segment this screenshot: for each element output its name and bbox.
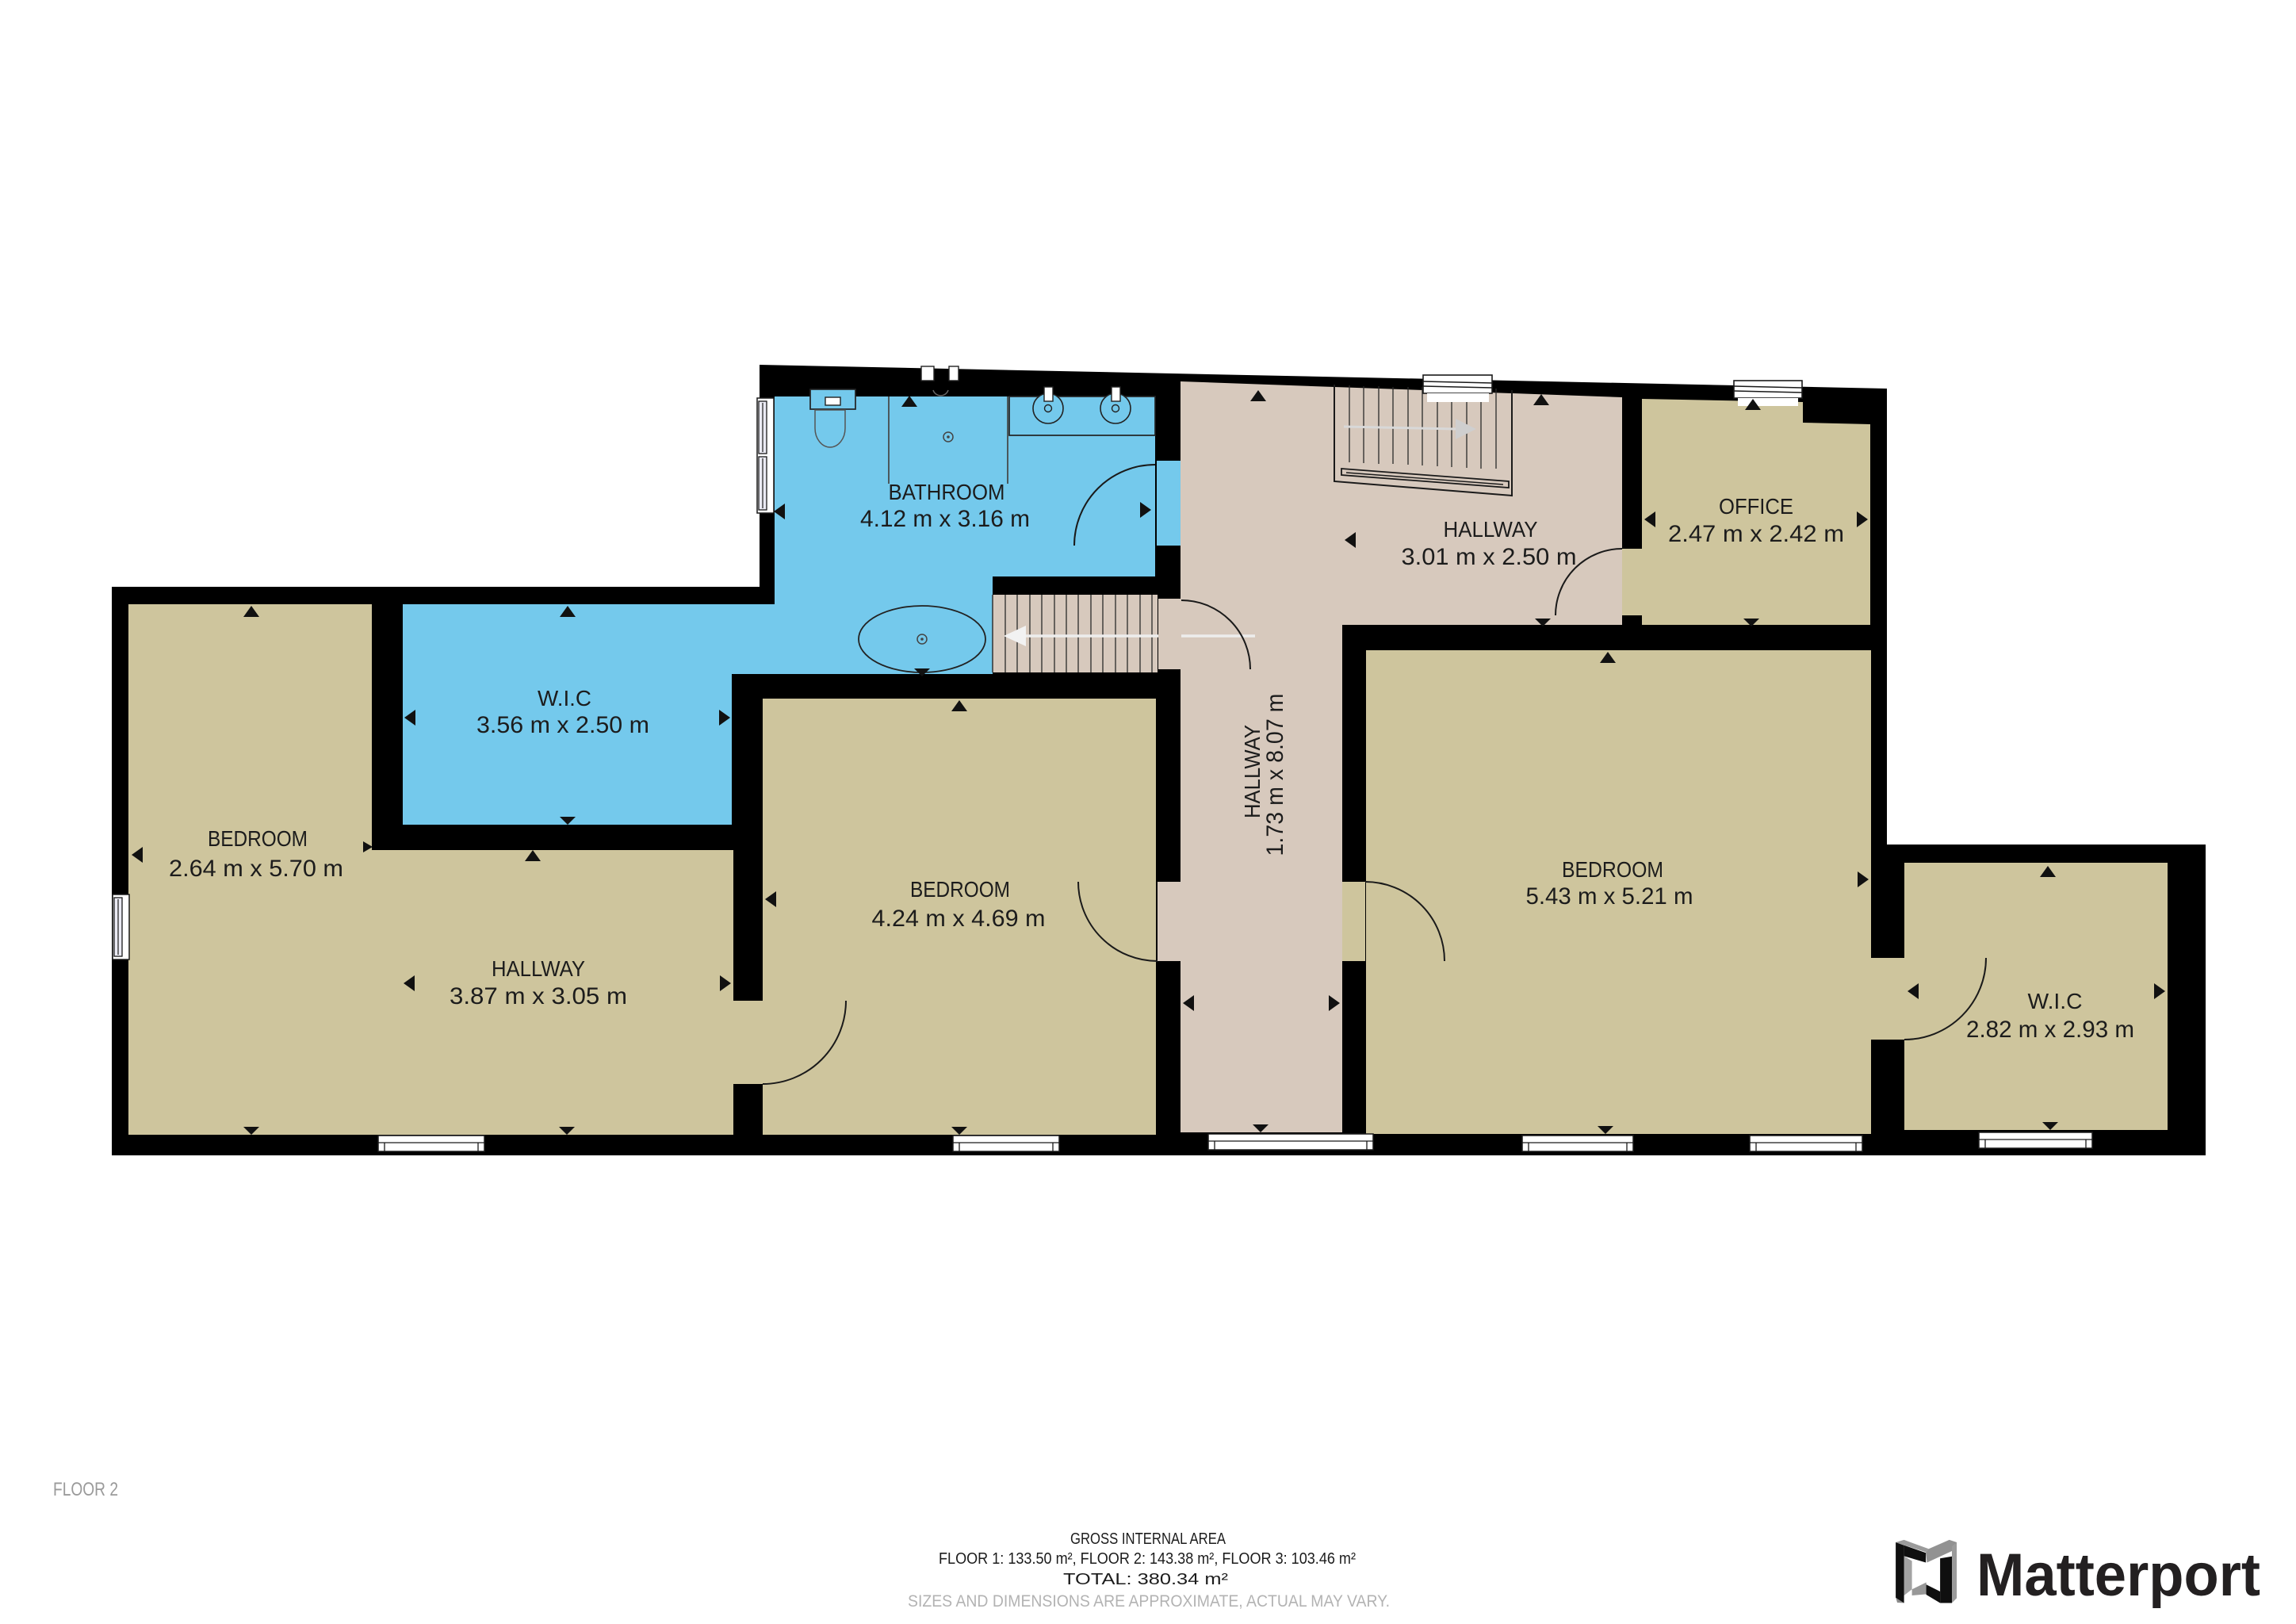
svg-text:TOTAL: 380.34 m²: TOTAL: 380.34 m² xyxy=(1063,1571,1228,1588)
svg-text:HALLWAY: HALLWAY xyxy=(492,956,585,981)
svg-text:W.I.C: W.I.C xyxy=(538,686,591,710)
svg-text:3.56 m x 2.50 m: 3.56 m x 2.50 m xyxy=(476,712,649,738)
svg-text:2.82 m x 2.93 m: 2.82 m x 2.93 m xyxy=(1966,1017,2134,1043)
svg-text:4.12 m x 3.16 m: 4.12 m x 3.16 m xyxy=(860,506,1030,532)
svg-text:FLOOR 1: 133.50 m², FLOOR 2: 1: FLOOR 1: 133.50 m², FLOOR 2: 143.38 m², … xyxy=(939,1550,1356,1568)
svg-text:BEDROOM: BEDROOM xyxy=(208,826,308,851)
svg-text:BEDROOM: BEDROOM xyxy=(910,877,1010,902)
svg-text:3.87 m x 3.05 m: 3.87 m x 3.05 m xyxy=(450,983,627,1009)
svg-text:BEDROOM: BEDROOM xyxy=(1562,857,1663,882)
svg-text:W.I.C: W.I.C xyxy=(2028,989,2083,1013)
svg-text:SIZES AND DIMENSIONS ARE APPRO: SIZES AND DIMENSIONS ARE APPROXIMATE, AC… xyxy=(908,1592,1390,1611)
svg-text:2.47 m x 2.42 m: 2.47 m x 2.42 m xyxy=(1668,521,1844,547)
svg-text:Matterport: Matterport xyxy=(1976,1542,2260,1609)
svg-text:HALLWAY: HALLWAY xyxy=(1444,517,1538,542)
svg-text:HALLWAY: HALLWAY xyxy=(1240,725,1265,818)
svg-text:3.01 m x 2.50 m: 3.01 m x 2.50 m xyxy=(1402,544,1577,570)
svg-text:2.64 m x 5.70 m: 2.64 m x 5.70 m xyxy=(169,856,343,882)
svg-text:5.43 m x 5.21 m: 5.43 m x 5.21 m xyxy=(1526,883,1693,910)
svg-text:GROSS INTERNAL AREA: GROSS INTERNAL AREA xyxy=(1070,1530,1226,1548)
svg-text:4.24 m x 4.69 m: 4.24 m x 4.69 m xyxy=(872,906,1046,932)
svg-text:1.73 m x 8.07 m: 1.73 m x 8.07 m xyxy=(1262,694,1288,856)
svg-text:BATHROOM: BATHROOM xyxy=(889,480,1005,504)
svg-text:OFFICE: OFFICE xyxy=(1719,494,1793,519)
svg-text:FLOOR 2: FLOOR 2 xyxy=(53,1479,118,1500)
